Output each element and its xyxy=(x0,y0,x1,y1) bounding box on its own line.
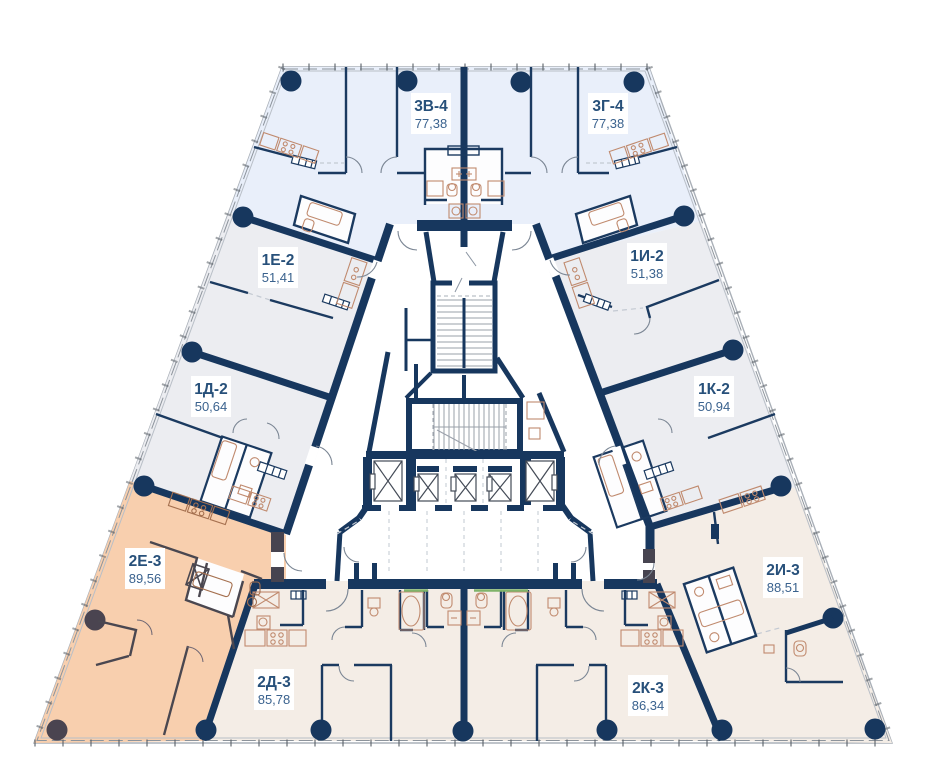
svg-text:1К-2: 1К-2 xyxy=(698,381,730,398)
svg-text:2К-3: 2К-3 xyxy=(632,680,664,697)
svg-text:2Д-3: 2Д-3 xyxy=(257,674,291,691)
svg-text:77,38: 77,38 xyxy=(415,116,448,131)
svg-text:50,94: 50,94 xyxy=(698,399,731,414)
svg-text:89,56: 89,56 xyxy=(129,571,162,586)
svg-text:51,41: 51,41 xyxy=(262,270,295,285)
svg-text:2Е-3: 2Е-3 xyxy=(129,553,162,570)
svg-text:85,78: 85,78 xyxy=(258,692,291,707)
svg-text:2И-3: 2И-3 xyxy=(766,562,800,579)
svg-text:1Е-2: 1Е-2 xyxy=(262,252,295,269)
svg-text:3В-4: 3В-4 xyxy=(414,98,448,115)
svg-text:51,38: 51,38 xyxy=(631,266,664,281)
svg-text:1И-2: 1И-2 xyxy=(630,248,664,265)
svg-text:77,38: 77,38 xyxy=(592,116,625,131)
svg-text:88,51: 88,51 xyxy=(767,580,800,595)
svg-text:86,34: 86,34 xyxy=(632,698,665,713)
svg-text:50,64: 50,64 xyxy=(195,399,228,414)
svg-text:3Г-4: 3Г-4 xyxy=(592,98,624,115)
svg-text:1Д-2: 1Д-2 xyxy=(194,381,227,398)
